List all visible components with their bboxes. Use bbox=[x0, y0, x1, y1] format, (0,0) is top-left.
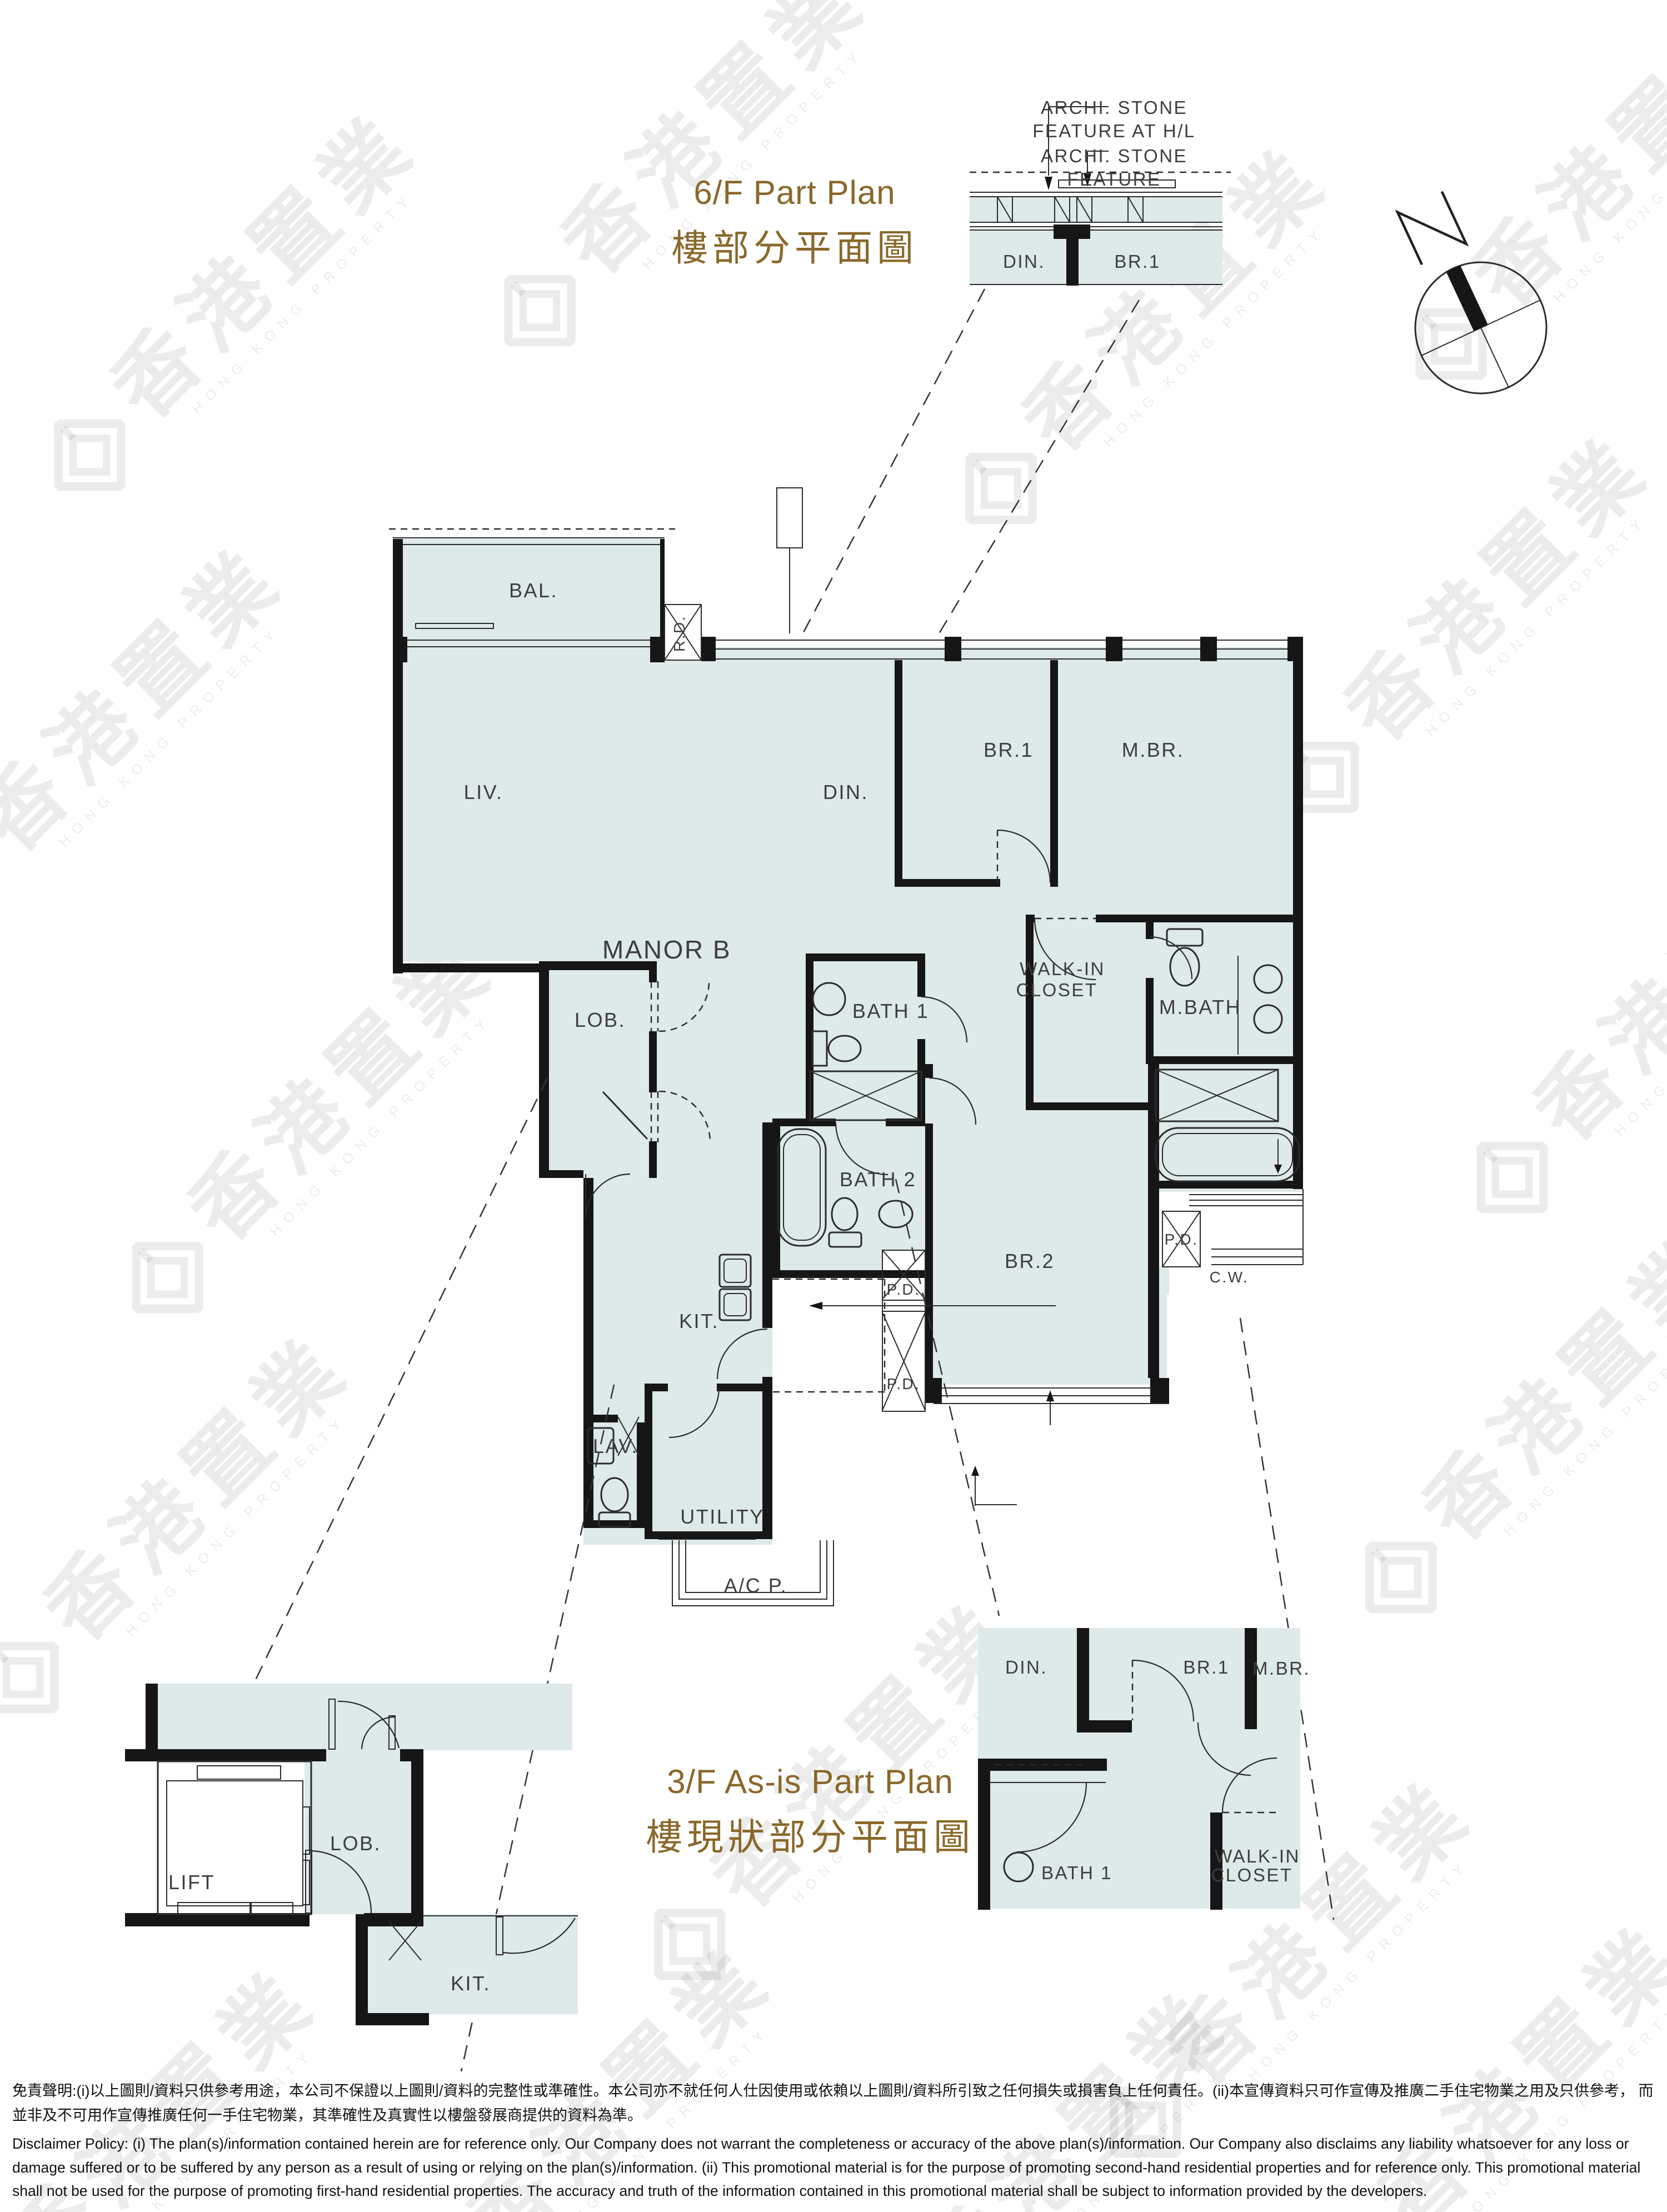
label-3f-din: DIN. bbox=[1005, 1657, 1047, 1677]
callout-archi-stone-hl-line1: ARCHI. STONE bbox=[1041, 97, 1187, 118]
label-lobby: LOB. bbox=[575, 1008, 626, 1031]
compass bbox=[1362, 173, 1568, 415]
disclaimer: 免責聲明:(i)以上圖則/資料只供參考用途，本公司不保證以上圖則/資料的完整性或… bbox=[12, 2079, 1655, 2208]
label-dining: DIN. bbox=[823, 781, 869, 803]
label-pd-mid2: P.D. bbox=[887, 1375, 921, 1392]
page: 香港置業HONG KONG PROPERTY香港置業HONG KONG PROP… bbox=[0, 0, 1667, 2212]
disclaimer-zh: 免責聲明:(i)以上圖則/資料只供參考用途，本公司不保證以上圖則/資料的完整性或… bbox=[12, 2079, 1655, 2128]
label-3f-walkin-line1: WALK-IN bbox=[1215, 1846, 1300, 1866]
label-3f-kit: KIT. bbox=[451, 1972, 491, 1995]
cutout-porch bbox=[772, 1278, 884, 1392]
label-ac-platform: A/C P. bbox=[724, 1574, 787, 1597]
label-balcony: BAL. bbox=[509, 579, 558, 602]
label-kitchen: KIT. bbox=[679, 1310, 719, 1332]
label-walkin-line2: CLOSET bbox=[1016, 980, 1097, 1000]
room-fill-lobby-lower bbox=[539, 1122, 653, 1178]
label-3f-bath1: BATH 1 bbox=[1041, 1863, 1112, 1883]
room-fill-living-dining bbox=[403, 647, 1303, 961]
label-3f-br1: BR.1 bbox=[1183, 1657, 1229, 1677]
title-3f-part-plan: 3/F As-is Part Plan 樓現狀部分平面圖 bbox=[421, 1762, 1199, 1861]
callout-archi-stone-line1: ARCHI. STONE bbox=[1041, 146, 1187, 166]
label-cw: C.W. bbox=[1210, 1269, 1249, 1286]
label-unit-name: MANOR B bbox=[602, 935, 731, 964]
compass-needle-icon bbox=[1446, 265, 1488, 331]
label-mbath: M.BATH bbox=[1159, 996, 1241, 1018]
title-3f-en: 3/F As-is Part Plan bbox=[421, 1762, 1199, 1801]
title-6f-part-plan: 6/F Part Plan 樓部分平面圖 bbox=[406, 173, 1184, 272]
label-pd-right: P.D. bbox=[1165, 1231, 1199, 1248]
title-3f-zh: 樓現狀部分平面圖 bbox=[421, 1807, 1199, 1861]
disclaimer-en: Disclaimer Policy: (i) The plan(s)/infor… bbox=[12, 2132, 1655, 2203]
compass-north-icon bbox=[1398, 192, 1466, 264]
room-fill-br2-lower bbox=[925, 1295, 1167, 1385]
label-3f-lift: LIFT bbox=[168, 1871, 215, 1894]
room-fill-kitchen-column bbox=[583, 1122, 772, 1545]
label-utility: UTILITY bbox=[680, 1505, 765, 1528]
label-living: LIV. bbox=[464, 781, 503, 803]
label-mbr: M.BR. bbox=[1122, 738, 1185, 761]
cutout-pd-cw bbox=[1156, 1192, 1303, 1267]
callout-archi-stone-hl-line2: FEATURE AT H/L bbox=[1032, 121, 1196, 141]
label-3f-walkin-line2: CLOSET bbox=[1211, 1865, 1292, 1885]
title-6f-zh: 樓部分平面圖 bbox=[406, 218, 1184, 272]
floorplan-drawing: ARCHI. STONE FEATURE AT H/L ARCHI. STONE… bbox=[0, 0, 1667, 2212]
label-pd-mid1: P.D. bbox=[887, 1281, 921, 1298]
label-lavatory: LAV. bbox=[593, 1435, 638, 1457]
label-bath1: BATH 1 bbox=[852, 1000, 929, 1022]
label-3f-mbr: M.BR. bbox=[1252, 1658, 1310, 1679]
label-walkin-line1: WALK-IN bbox=[1020, 958, 1105, 979]
label-rd-shaft: R.D. bbox=[671, 615, 688, 652]
label-3f-lob: LOB. bbox=[330, 1832, 381, 1855]
title-6f-en: 6/F Part Plan bbox=[406, 173, 1184, 212]
label-br1: BR.1 bbox=[984, 738, 1034, 761]
label-br2: BR.2 bbox=[1005, 1250, 1055, 1272]
label-bath2: BATH 2 bbox=[840, 1168, 916, 1191]
